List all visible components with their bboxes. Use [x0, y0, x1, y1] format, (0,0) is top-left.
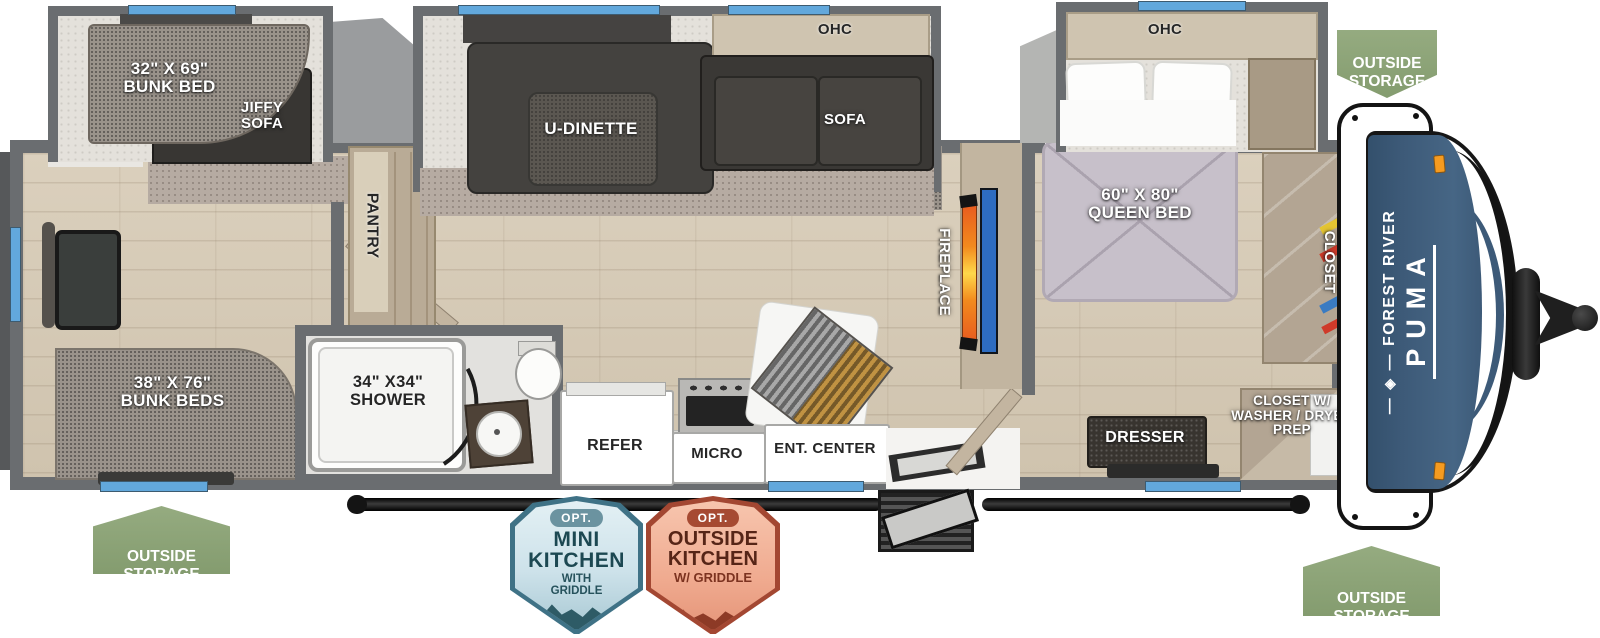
bedroom-ohc-label: OHC [1120, 22, 1210, 38]
bunk-bed-32-label: 32" X 69" BUNK BED [92, 60, 247, 97]
rail-right-cap [1290, 495, 1310, 514]
fireplace-label: FIREPLACE [936, 207, 952, 337]
window-bottom-bedroom [1145, 481, 1241, 492]
mini-kitchen-trees [515, 599, 638, 629]
sofa-label: SOFA [800, 112, 890, 128]
mini-kitchen-badge: OPT. MINI KITCHEN WITH GRIDDLE [510, 496, 643, 634]
rear-tv-pole [42, 222, 55, 328]
front-plate-rivet-tl [1352, 115, 1358, 121]
window-bottom-rear [100, 481, 208, 492]
mini-kitchen-badge-inner: OPT. MINI KITCHEN WITH GRIDDLE [515, 501, 638, 629]
dresser-label: DRESSER [1087, 429, 1203, 446]
brand-block: — ◈ — FOREST RIVER PUMA [1376, 162, 1440, 462]
dinette-label: U-DINETTE [516, 120, 666, 138]
sofa-ohc-label: OHC [790, 22, 880, 38]
refer-lid [566, 382, 666, 396]
mini-kitchen-opt: OPT. [515, 509, 638, 527]
outside-kitchen-grass [651, 603, 775, 629]
brand-forest-river: FOREST RIVER [1381, 210, 1399, 346]
outside-storage-badge-tongue: OUTSIDE STORAGE [1303, 546, 1440, 616]
hitch-jack [1512, 268, 1540, 380]
bedroom-wardrobe [1248, 58, 1316, 150]
oven-door [686, 396, 754, 426]
queen-sheet-top [1060, 100, 1236, 146]
window-main-slide-1 [458, 5, 660, 15]
dinette-ohc-bunk [463, 15, 671, 43]
outside-storage-text-front: OUTSIDE STORAGE [1349, 55, 1425, 90]
bath-sink-drain [494, 429, 500, 435]
shower-label: 34" X34" SHOWER [318, 374, 458, 410]
mini-kitchen-title: MINI KITCHEN [515, 530, 638, 571]
fireplace-cap-top [959, 194, 978, 208]
outside-kitchen-sub: W/ GRIDDLE [651, 571, 775, 585]
forest-river-logo-icon: ◈ [1381, 377, 1398, 389]
front-plate-rivet-tr [1413, 113, 1419, 119]
front-plate-rivet-bl [1352, 514, 1358, 520]
window-rear-wall [10, 227, 21, 322]
dinette-table [528, 92, 658, 186]
micro-label: MICRO [672, 446, 762, 462]
fireplace-cap-bottom [959, 337, 978, 351]
window-bottom-entry [768, 481, 864, 492]
brand-puma: PUMA [1401, 245, 1436, 379]
closet-label: CLOSET [1321, 207, 1337, 317]
window-bedroom-slide [1138, 1, 1246, 11]
mini-kitchen-opt-pill: OPT. [550, 509, 603, 527]
outside-storage-badge-front: OUTSIDE STORAGE [1337, 30, 1437, 98]
slide-wedge-left [333, 18, 423, 143]
rear-bunk-beds [55, 348, 297, 480]
rail-right [982, 498, 1308, 511]
outside-storage-text-rear: OUTSIDE STORAGE [123, 548, 199, 583]
front-plate-rivet-br [1413, 512, 1419, 518]
brand-dash-right: — [1381, 353, 1399, 371]
rail-left-cap [347, 495, 367, 514]
fireplace-strip [962, 205, 977, 342]
wall-tv [980, 188, 998, 354]
outside-storage-badge-rear: OUTSIDE STORAGE [93, 506, 230, 574]
queen-bed-label: 60" X 80" QUEEN BED [1057, 186, 1223, 223]
rear-bunk-beds-label: 38" X 76" BUNK BEDS [90, 374, 255, 411]
outside-kitchen-opt-pill: OPT. [687, 509, 740, 527]
rv-floorplan: 38" X 76" BUNK BEDS PANTRY 34" X34" SHOW… [0, 0, 1600, 638]
rear-divider-wall [331, 202, 344, 332]
outside-kitchen-title: OUTSIDE KITCHEN [651, 530, 775, 569]
mini-kitchen-sub: WITH GRIDDLE [515, 573, 638, 597]
toilet [515, 348, 562, 400]
marker-light-bottom [1433, 462, 1446, 481]
outside-kitchen-badge-inner: OPT. OUTSIDE KITCHEN W/ GRIDDLE [651, 501, 775, 629]
rear-tv [55, 230, 121, 330]
hitch-coupler [1572, 305, 1598, 331]
outside-storage-text-tongue: OUTSIDE STORAGE [1333, 590, 1409, 625]
bedroom-divider-wall [1022, 143, 1035, 395]
ent-center-label: ENT. CENTER [760, 441, 890, 457]
refer-label: REFER [560, 437, 670, 454]
outside-kitchen-opt: OPT. [651, 509, 775, 527]
window-main-slide-2 [728, 5, 830, 15]
pantry-label: PANTRY [363, 156, 380, 296]
jiffy-sofa-label: JIFFY SOFA [222, 100, 302, 132]
window-rear-slide [128, 5, 236, 15]
outside-kitchen-badge: OPT. OUTSIDE KITCHEN W/ GRIDDLE [646, 496, 780, 634]
brand-line-1: — ◈ — FOREST RIVER [1381, 210, 1399, 415]
stove-burners [684, 382, 756, 392]
brand-dash-left: — [1381, 397, 1399, 415]
dresser-drawer [1107, 464, 1219, 478]
